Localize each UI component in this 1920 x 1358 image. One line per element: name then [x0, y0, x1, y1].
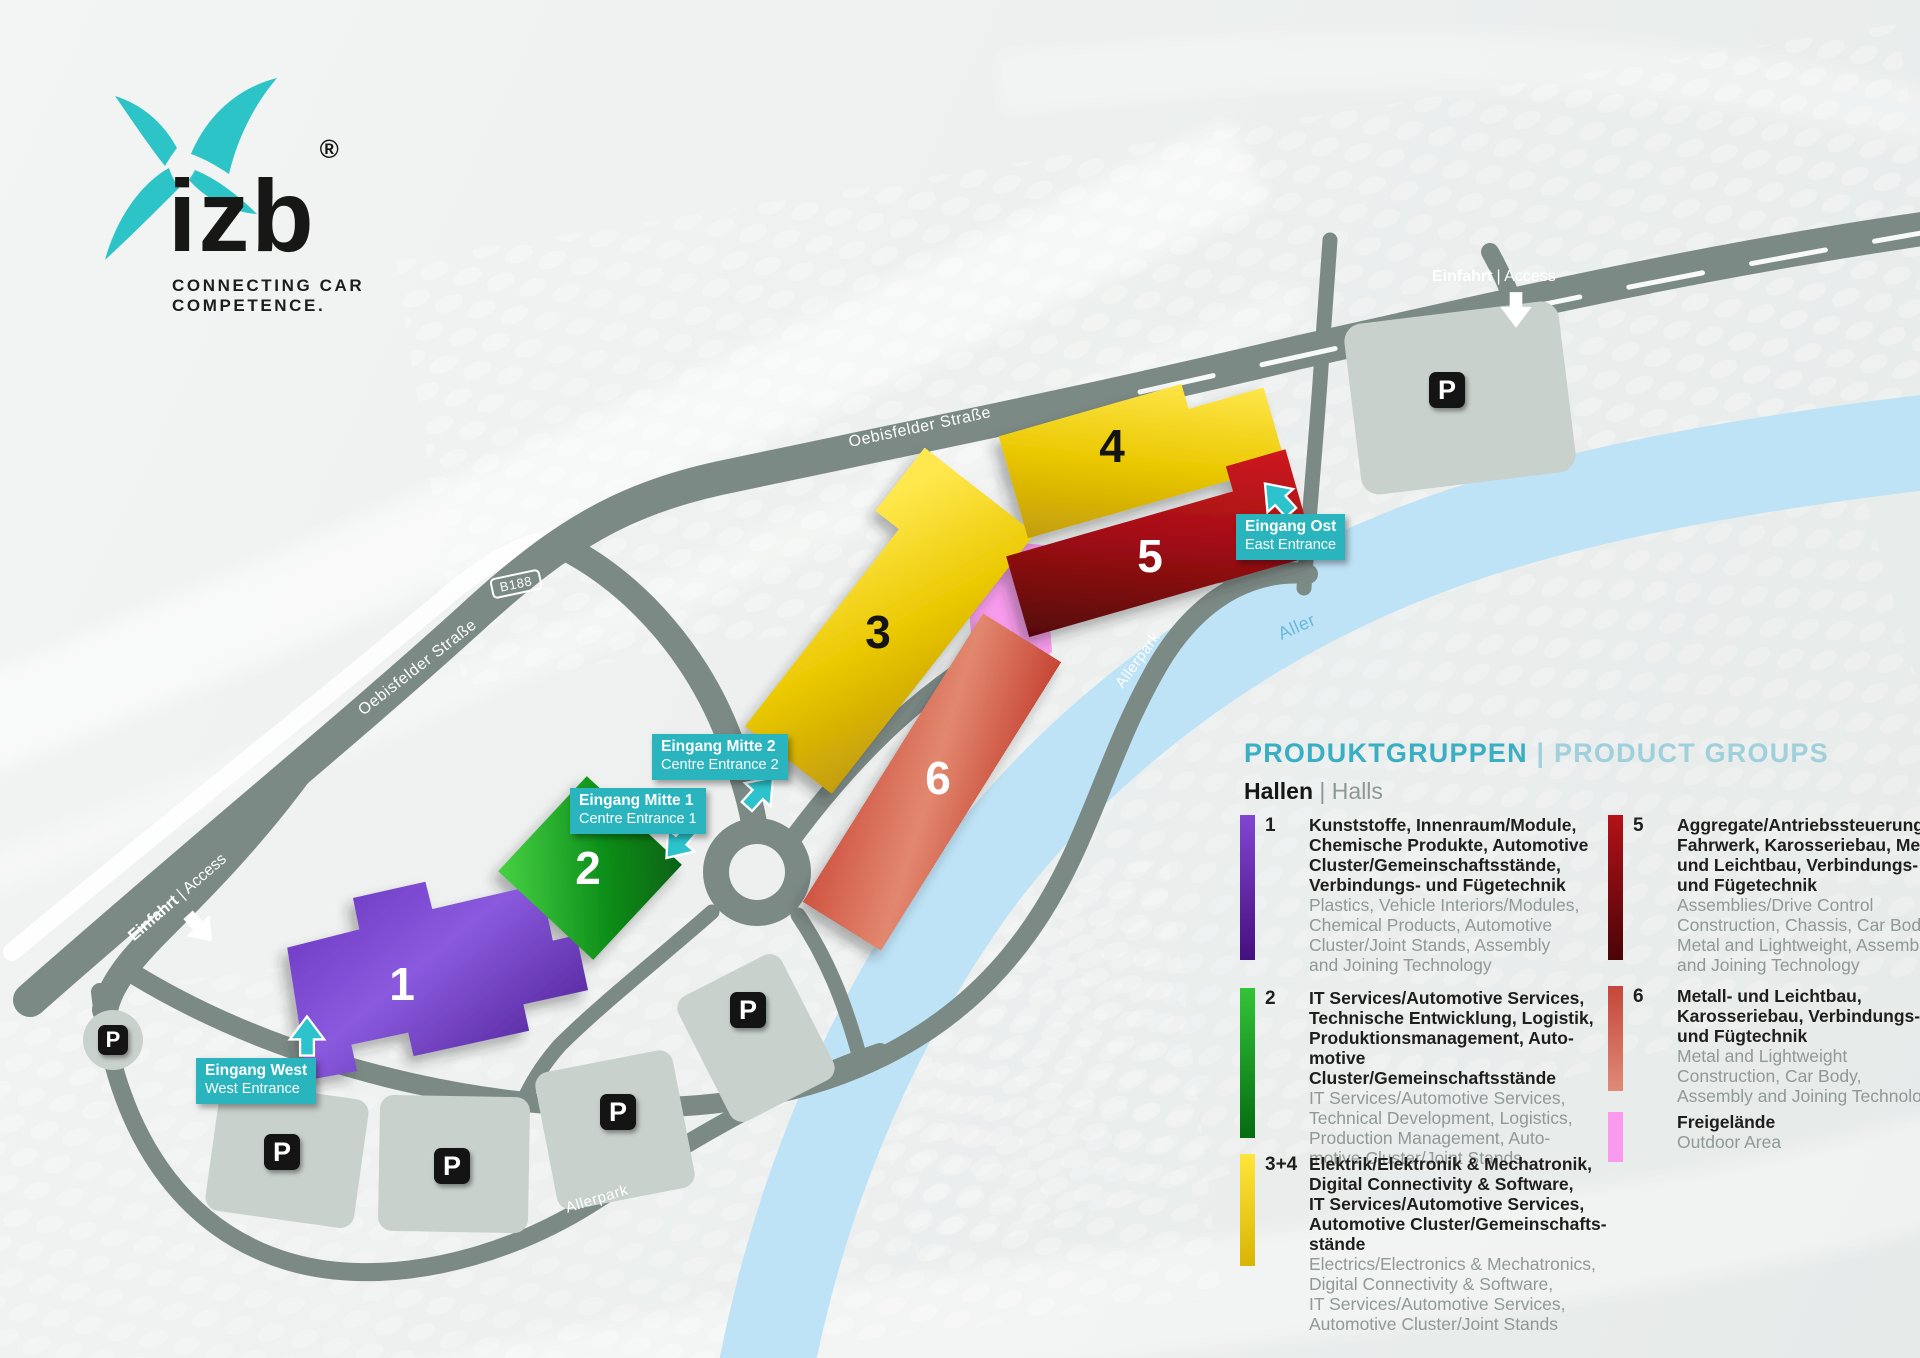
entrance-label-centre-1: Eingang Mitte 1 Centre Entrance 1	[570, 788, 706, 834]
legend-text-de-halls-3-4: Elektrik/Elektronik & Mechatronik, Digit…	[1309, 1154, 1610, 1254]
hall-2-number: 2	[575, 841, 601, 895]
legend-swatch-halls-3-4	[1240, 1154, 1255, 1266]
entrance-label-centre-2: Eingang Mitte 2 Centre Entrance 2	[652, 734, 788, 780]
legend-num-hall-6: 6	[1633, 986, 1677, 1008]
entrance-centre2-en: Centre Entrance 2	[661, 757, 779, 774]
parking-icon-northeast: P	[1429, 372, 1465, 408]
entrance-centre1-de: Eingang Mitte 1	[579, 792, 697, 811]
brand-wordmark: izb®	[168, 158, 337, 275]
legend-num-halls-3-4: 3+4	[1265, 1154, 1309, 1176]
hall-4-number: 4	[1099, 419, 1125, 473]
entrance-east-de: Eingang Ost	[1245, 518, 1336, 537]
legend-title: PRODUKTGRUPPEN | PRODUCT GROUPS	[1244, 738, 1829, 769]
legend-text-en-hall-6: Metal and Lightweight Construction, Car …	[1677, 1046, 1920, 1106]
legend-subtitle-de: Hallen	[1244, 778, 1313, 804]
legend-subtitle-en: | Halls	[1319, 778, 1383, 804]
parking-icon-west: P	[98, 1025, 128, 1055]
entrance-west-en: West Entrance	[205, 1081, 307, 1098]
hall-6-number: 6	[925, 751, 951, 805]
legend-swatch-outdoor	[1608, 1112, 1623, 1162]
entrance-label-east: Eingang Ost East Entrance	[1236, 514, 1345, 560]
hall-1-number: 1	[389, 957, 415, 1011]
site-map-canvas: izb® CONNECTING CAR COMPETENCE. Oebisfel…	[0, 0, 1920, 1358]
izb-logo: izb® CONNECTING CAR COMPETENCE.	[60, 50, 520, 310]
entrance-label-west: Eingang West West Entrance	[196, 1058, 316, 1104]
legend-swatch-hall-6	[1608, 986, 1623, 1091]
entrance-east-en: East Entrance	[1245, 537, 1336, 554]
legend-text-en-halls-3-4: Electrics/Electronics & Mechatronics, Di…	[1309, 1254, 1610, 1334]
legend-subtitle: Hallen | Halls	[1244, 778, 1383, 805]
legend-text-de-outdoor: Freigelände	[1677, 1112, 1920, 1132]
legend-title-de: PRODUKTGRUPPEN	[1244, 738, 1528, 768]
legend-num-hall-5: 5	[1633, 815, 1677, 837]
legend-text-en-outdoor: Outdoor Area	[1677, 1132, 1920, 1152]
access-label-north-rest: | Access	[1496, 268, 1555, 285]
legend-text-de-hall-6: Metall- und Leichtbau, Karosseriebau, Ve…	[1677, 986, 1920, 1046]
legend-item-hall-6: 6 Metall- und Leichtbau, Karosseriebau, …	[1608, 986, 1920, 1106]
legend-item-outdoor-area: Freigelände Outdoor Area	[1608, 1112, 1920, 1162]
legend-text-de-hall-2: IT Services/Automotive Services, Technis…	[1309, 988, 1610, 1088]
access-label-north: Einfahrt| Access	[1432, 268, 1556, 286]
hall-3-number: 3	[865, 605, 891, 659]
parking-icon-south-2: P	[434, 1148, 470, 1184]
legend-item-hall-5: 5 Aggregate/Antriebssteuerung, Fahrwerk,…	[1608, 815, 1920, 975]
legend-swatch-hall-1	[1240, 815, 1255, 960]
brand-tagline: CONNECTING CAR COMPETENCE.	[172, 276, 520, 316]
legend-swatch-hall-5	[1608, 815, 1623, 960]
legend-text-en-hall-5: Assemblies/Drive Control Construction, C…	[1677, 895, 1920, 975]
legend-text-de-hall-5: Aggregate/Antriebssteuerung, Fahrwerk, K…	[1677, 815, 1920, 895]
legend-item-hall-1: 1 Kunststoffe, Innenraum/Module, Chemisc…	[1240, 815, 1610, 975]
registered-mark: ®	[320, 134, 341, 164]
legend-title-en: PRODUCT GROUPS	[1554, 738, 1829, 768]
legend-text-en-hall-1: Plastics, Vehicle Interiors/Modules, Che…	[1309, 895, 1610, 975]
access-label-north-bold: Einfahrt	[1432, 268, 1492, 285]
legend-item-halls-3-4: 3+4 Elektrik/Elektronik & Mechatronik, D…	[1240, 1154, 1610, 1334]
roundabout	[703, 818, 811, 926]
entrance-centre1-en: Centre Entrance 1	[579, 811, 697, 828]
legend-title-divider: |	[1537, 738, 1546, 768]
legend-text-de-hall-1: Kunststoffe, Innenraum/Module, Chemische…	[1309, 815, 1610, 895]
legend-swatch-hall-2	[1240, 988, 1255, 1138]
legend-num-hall-1: 1	[1265, 815, 1309, 837]
legend-item-hall-2: 2 IT Services/Automotive Services, Techn…	[1240, 988, 1610, 1168]
entrance-west-de: Eingang West	[205, 1062, 307, 1081]
hall-5-number: 5	[1137, 529, 1163, 583]
parking-icon-south-1: P	[264, 1134, 300, 1170]
legend-num-hall-2: 2	[1265, 988, 1309, 1010]
parking-icon-south-3: P	[600, 1094, 636, 1130]
parking-icon-south-4: P	[730, 992, 766, 1028]
entrance-centre2-de: Eingang Mitte 2	[661, 738, 779, 757]
